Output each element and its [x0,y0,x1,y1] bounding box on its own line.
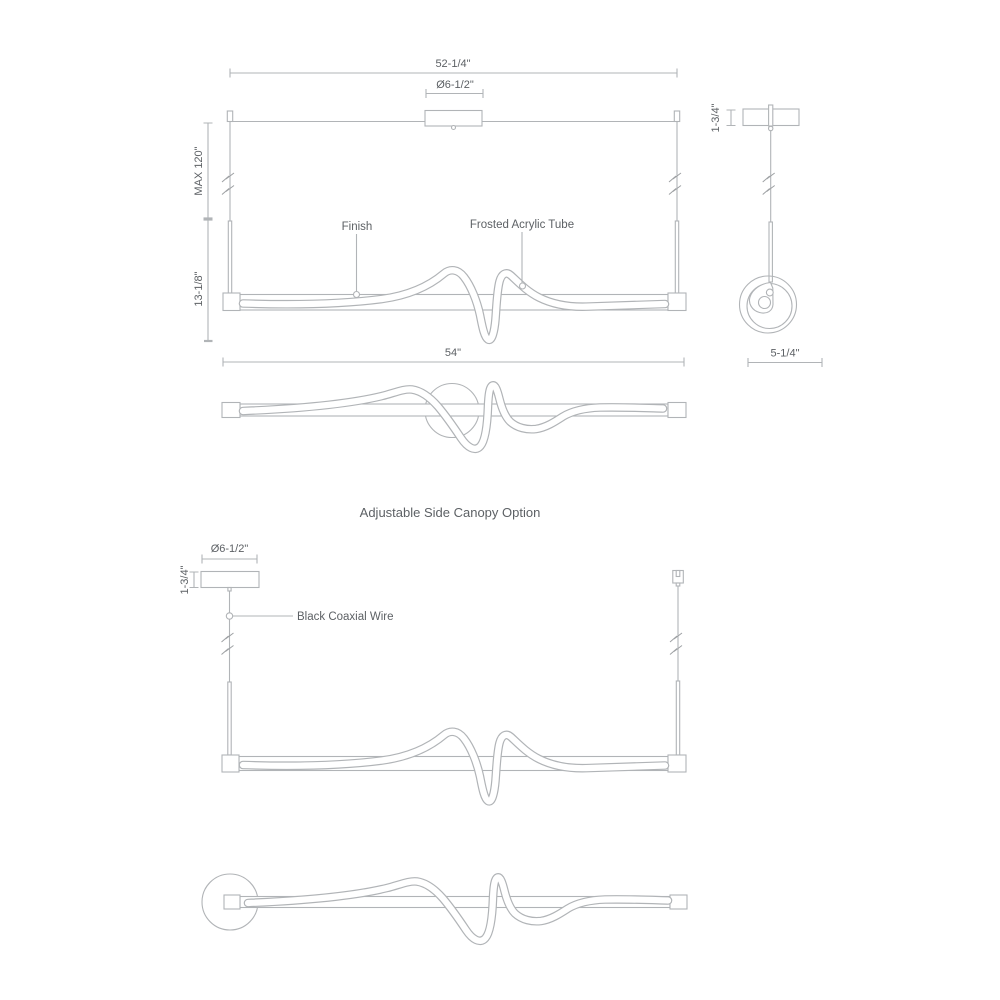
tube-label: Frosted Acrylic Tube [470,219,574,231]
dim-canopy-diameter-2-text: Ø6-1/2" [211,543,249,555]
dim-canopy-height-2-text: 1-3/4" [179,565,191,594]
bar-end-cap-right [668,755,686,772]
break-mark [670,646,682,655]
bar-end-cap-left [222,755,239,772]
dim-canopy-diameter-text: Ø6-1/2" [436,79,474,91]
front-elevation-view: 52-1/4" Ø6-1/2" MAX 120" 13 [193,58,686,367]
adjustable-canopy-front-view: Ø6-1/2" 1-3/4" Black Coaxial Wire [179,543,686,801]
plan-acrylic-tube-squiggle [243,385,663,448]
pendant-light-spec-sheet: 52-1/4" Ø6-1/2" MAX 120" 13 [0,0,1000,1000]
suspension-wires [230,122,677,222]
side-elevation-view: 1-3/4" 5-1/4" [710,103,822,367]
finish-label: Finish [342,221,373,233]
tube-leader-dot [520,283,526,289]
dim-overall-bottom-text: 54" [445,347,461,359]
side-mount-canopy [201,572,259,588]
bar-end-cap-left [222,403,240,418]
break-mark [222,173,234,182]
dim-overall-width-top: 52-1/4" [230,58,677,78]
plan-view [222,384,686,449]
stem-rod-right [676,681,679,755]
adjustable-canopy-plan-view [202,874,687,941]
wire-top-fitting-left [227,111,232,122]
break-mark [763,186,775,195]
side-stem-rod [769,222,772,282]
bar-end-cap-right [668,403,686,418]
plan-acrylic-tube-squiggle-2 [248,877,668,940]
wire-leader-dot [226,613,232,619]
dim-fixture-depth-text: 5-1/4" [771,348,800,360]
break-mark [670,633,682,642]
finish-leader-dot [354,292,360,298]
dim-canopy-height-text: 1-3/4" [710,103,722,132]
finish-callout: Finish [342,221,373,298]
dim-canopy-diameter: Ø6-1/2" [426,79,483,98]
section-title: Adjustable Side Canopy Option [360,505,541,520]
dim-canopy-height-2: 1-3/4" [179,565,199,594]
canopy-wire-nub [228,588,231,592]
bar-end-cap-left [224,895,240,909]
stem-rod-left [228,682,231,755]
clamp-detail-screw [766,289,773,296]
side-canopy-stem [769,105,773,126]
dim-fixture-height-text: 13-1/8" [193,271,205,306]
canopy-wire-exit [452,126,456,130]
dim-fixture-depth: 5-1/4" [748,348,822,368]
dim-fixture-height: 13-1/8" [193,219,213,341]
break-mark [669,186,681,195]
dim-canopy-diameter-2: Ø6-1/2" [202,543,257,564]
break-mark [669,173,681,182]
side-tube-rings [740,276,797,333]
center-canopy [425,111,482,127]
bar-end-cap-right [668,293,686,311]
dim-canopy-height: 1-3/4" [710,103,736,132]
side-wire-exit [769,126,773,130]
wire-label: Black Coaxial Wire [297,611,394,623]
spec-drawing-canvas: 52-1/4" Ø6-1/2" MAX 120" 13 [0,0,1000,1000]
stem-rod-right [675,221,678,294]
bar-end-cap-right [670,895,687,909]
dim-overall-width-bottom: 54" [223,347,684,367]
break-mark [222,646,234,655]
wire-callout: Black Coaxial Wire [226,611,393,623]
tube-callout: Frosted Acrylic Tube [470,219,574,289]
wire-top-fitting-right [674,111,679,122]
break-mark [222,633,234,642]
dim-max-suspension: MAX 120" [193,123,213,221]
clamp-detail-circle [759,297,771,309]
dim-max-suspension-text: MAX 120" [193,146,205,195]
right-wire-fitting [673,571,684,587]
dim-overall-top-text: 52-1/4" [435,58,470,70]
bar-end-cap-left [223,293,240,311]
break-mark [222,186,234,195]
stem-rod-left [228,221,231,294]
break-mark [763,173,775,182]
